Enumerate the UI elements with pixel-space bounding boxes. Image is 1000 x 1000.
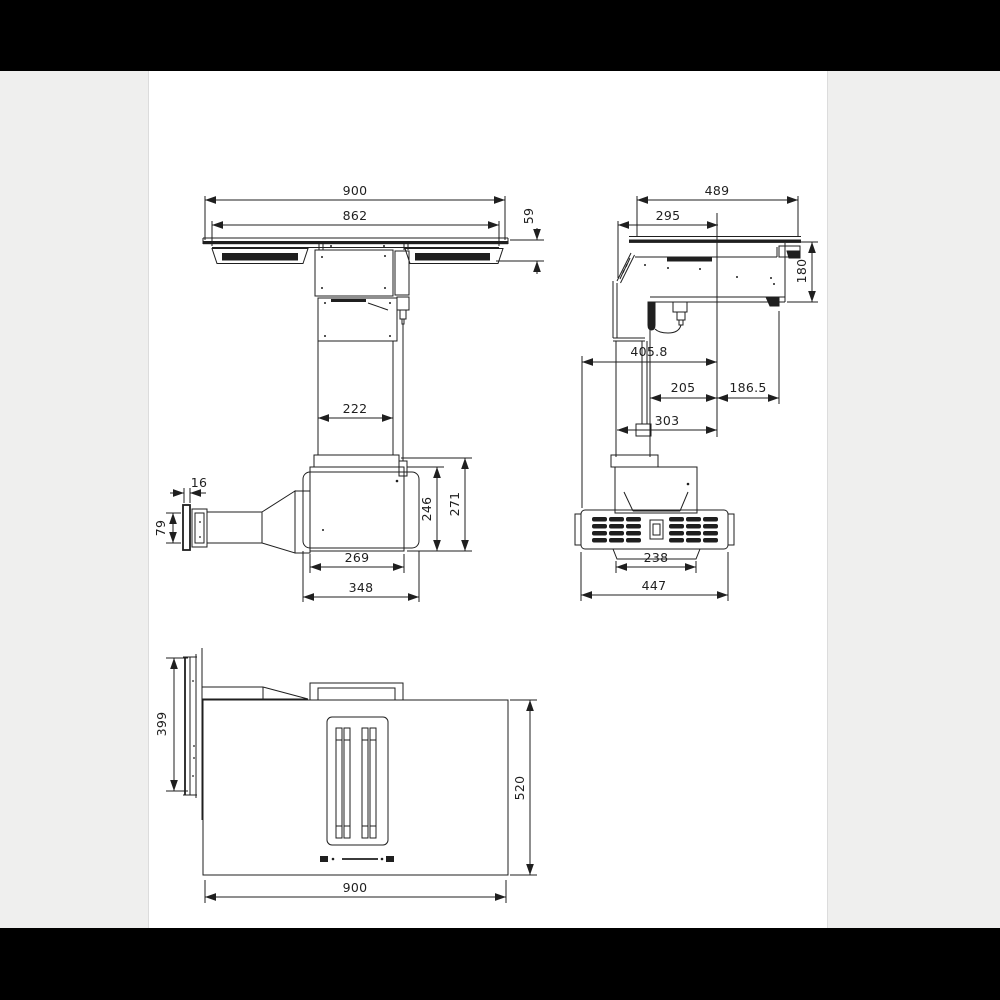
dim-label: 238 xyxy=(644,550,669,565)
front-view: 900 862 59 222 16 xyxy=(153,183,544,602)
chimney-column-side xyxy=(616,302,651,457)
dim-bottom-flange-length: 399 xyxy=(154,658,188,791)
dim-bottom-depth: 520 xyxy=(510,700,537,875)
chimney-column xyxy=(318,341,393,455)
dim-label: 222 xyxy=(343,401,368,416)
dim-front-glass-width: 862 xyxy=(212,208,499,246)
dim-column-width: 222 xyxy=(318,401,393,418)
dim-side-column-rear: 303 xyxy=(617,413,717,430)
duct-top xyxy=(202,687,308,699)
dim-flange-offset: 16 xyxy=(170,475,207,503)
technical-drawing: 900 862 59 222 16 xyxy=(0,0,1000,1000)
power-cord xyxy=(395,251,409,476)
dim-label: 900 xyxy=(343,183,368,198)
body-side xyxy=(613,243,785,341)
upper-column-box xyxy=(315,250,393,296)
dim-label: 186.5 xyxy=(729,380,766,395)
dim-duct-height: 79 xyxy=(153,513,181,543)
vent-grille-top xyxy=(327,717,388,845)
page-background: 900 862 59 222 16 xyxy=(0,0,1000,1000)
dim-label: 246 xyxy=(419,497,434,522)
flange-edge xyxy=(183,648,202,820)
glass-top-side xyxy=(629,237,801,259)
bottom-view: 399 520 900 xyxy=(154,648,537,903)
motor-assembly xyxy=(303,455,419,551)
glass-top xyxy=(203,238,508,248)
dim-label: 447 xyxy=(642,578,667,593)
dim-label: 405.8 xyxy=(630,344,667,359)
dim-motor-box-height: 246 xyxy=(407,467,444,551)
dim-label: 295 xyxy=(656,208,681,223)
dim-label: 348 xyxy=(349,580,374,595)
motor-assembly-side xyxy=(611,455,697,513)
vent-switch xyxy=(650,520,663,539)
drawer-box xyxy=(318,298,397,341)
dim-label: 59 xyxy=(521,208,536,225)
dim-side-rear-offset: 186.5 xyxy=(717,311,779,404)
side-view: 489 295 180 405.8 205 xyxy=(575,183,818,601)
dim-side-column-front: 205 xyxy=(650,380,717,398)
body-outline-top xyxy=(203,683,508,875)
dim-label: 205 xyxy=(671,380,696,395)
rear-handle xyxy=(310,683,403,700)
dim-front-edge-height: 59 xyxy=(496,208,544,274)
element-trays xyxy=(212,249,503,264)
dim-label: 489 xyxy=(705,183,730,198)
louver-grille-right xyxy=(669,517,718,543)
dim-side-vent-width: 238 xyxy=(616,550,696,573)
dim-bottom-width: 900 xyxy=(205,880,506,903)
dim-label: 862 xyxy=(343,208,368,223)
louver-grille-left xyxy=(592,517,641,543)
plug-side xyxy=(648,302,687,333)
dim-label: 520 xyxy=(512,776,527,801)
dim-label: 16 xyxy=(191,475,208,490)
dim-label: 303 xyxy=(655,413,680,428)
dim-label: 269 xyxy=(345,550,370,565)
dim-motor-box-width: 269 xyxy=(310,550,404,573)
dim-label: 180 xyxy=(794,259,809,284)
dim-label: 900 xyxy=(343,880,368,895)
control-panel-markings xyxy=(320,856,394,862)
dim-label: 399 xyxy=(154,712,169,737)
dim-label: 79 xyxy=(153,520,168,537)
dim-label: 271 xyxy=(447,492,462,517)
